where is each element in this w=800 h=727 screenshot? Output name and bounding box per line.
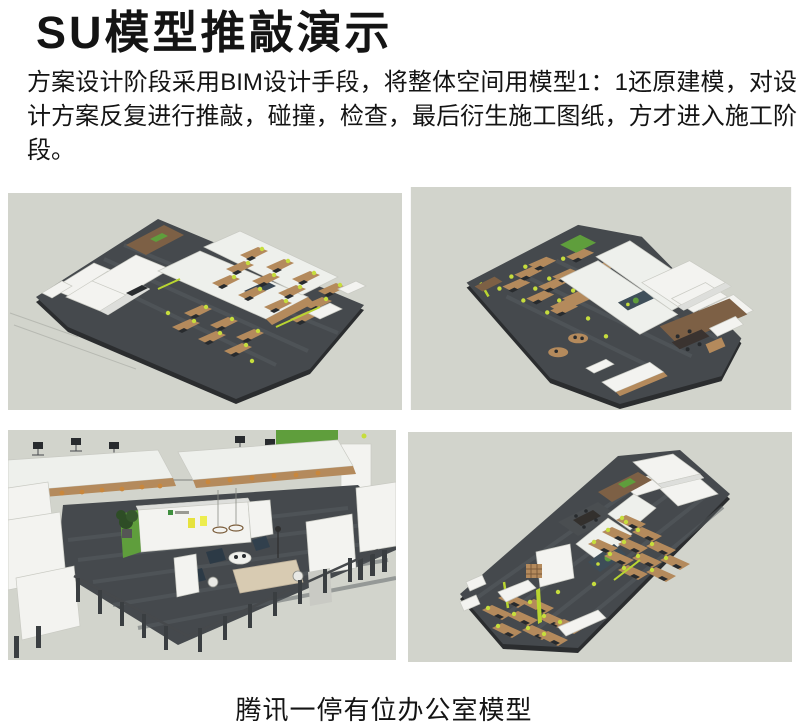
model-render-top-left <box>8 193 402 410</box>
slide-page: SU模型推敲演示 方案设计阶段采用BIM设计手段，将整体空间用模型1：1还原建模… <box>0 0 800 727</box>
model-render-top-right <box>410 187 792 410</box>
sketchup-aerial-view-icon <box>410 187 792 410</box>
model-render-bottom-left <box>8 430 396 660</box>
page-title: SU模型推敲演示 <box>36 0 393 61</box>
sketchup-interior-view-icon <box>8 430 396 660</box>
image-caption: 腾讯一停有位办公室模型 <box>0 690 768 727</box>
intro-paragraph: 方案设计阶段采用BIM设计手段，将整体空间用模型1：1还原建模，对设计方案反复进… <box>27 66 797 168</box>
sketchup-aerial-view-icon <box>8 193 402 410</box>
sketchup-aerial-view-icon <box>408 432 792 662</box>
model-render-bottom-right <box>408 432 792 662</box>
